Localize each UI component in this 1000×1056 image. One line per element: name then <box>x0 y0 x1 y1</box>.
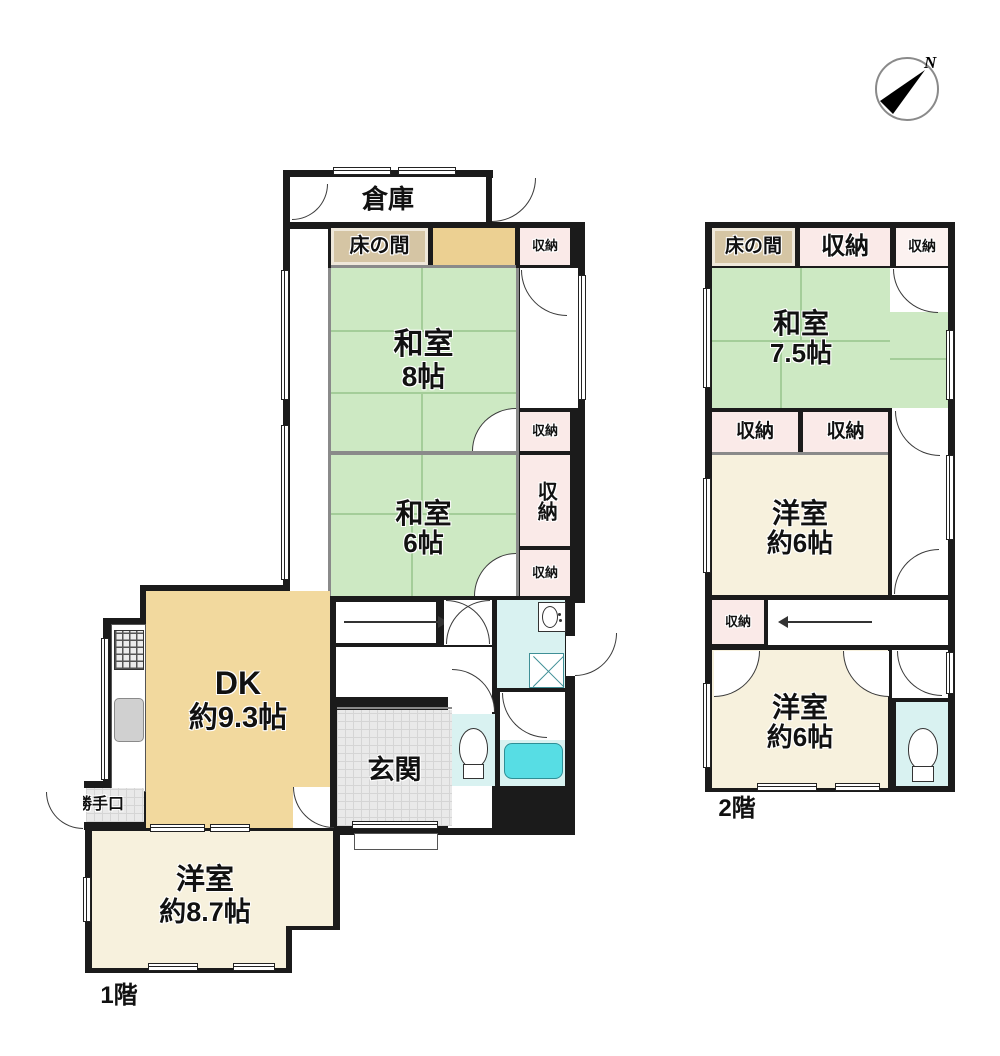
window <box>210 824 250 832</box>
room-closet-1f-r2 <box>520 455 570 546</box>
sink-tap <box>558 613 561 616</box>
sink-tap <box>559 619 562 622</box>
room-closet-1f-r3 <box>520 550 570 596</box>
door-gap <box>566 636 575 676</box>
window <box>946 652 954 694</box>
room-closet-2f-top2 <box>896 228 948 266</box>
katteguchi-landing <box>86 788 144 822</box>
sink-basin <box>542 606 558 628</box>
stove-icon <box>114 630 144 670</box>
floor-plan-canvas: N 倉庫 床の間 収納 和室 8帖 収納 収納 収納 和室 6帖 <box>0 0 1000 1056</box>
partition-line <box>516 268 519 596</box>
door-arc <box>575 633 617 676</box>
toilet-base <box>463 764 484 779</box>
room-closet-2f-m2 <box>803 412 888 452</box>
compass-icon: N <box>872 50 944 124</box>
window <box>835 783 880 791</box>
door-arc <box>46 792 83 829</box>
corridor-1f-left <box>290 229 328 596</box>
tatami-line <box>780 340 782 408</box>
toilet-base <box>912 766 934 782</box>
partition-line <box>337 707 452 709</box>
room-tokonoma-2f <box>712 228 795 266</box>
toilet-icon <box>459 728 488 768</box>
stairs-2f-arrowhead <box>772 616 788 628</box>
window <box>333 167 391 175</box>
window <box>281 270 289 400</box>
window <box>703 288 711 388</box>
room-oshiire-1f <box>433 228 515 265</box>
window <box>83 877 91 922</box>
window <box>150 824 205 832</box>
stairs-1f-arrow <box>344 621 440 623</box>
window <box>703 683 711 768</box>
partition-line <box>331 265 516 268</box>
floor1-label: 1階 <box>84 980 154 1012</box>
window <box>233 963 275 971</box>
room-closet-1f-top <box>520 228 570 265</box>
tatami-line <box>800 268 802 342</box>
room-youshitsu6a <box>712 455 888 595</box>
tatami-line <box>421 268 423 332</box>
room-genkan <box>337 710 452 826</box>
tatami-line <box>421 392 423 451</box>
room-closet-2f-m1 <box>712 412 798 452</box>
window <box>703 478 711 573</box>
room-closet-2f-stair <box>712 600 764 644</box>
entrance-door <box>352 821 438 829</box>
room-closet-1f-r1 <box>520 412 570 451</box>
room-youshitsu87-b <box>92 925 286 968</box>
entrance-step <box>354 833 438 850</box>
window <box>148 963 198 971</box>
window <box>398 167 456 175</box>
window <box>757 783 817 791</box>
tatami-line <box>331 392 516 394</box>
partition-line <box>331 451 516 455</box>
washing-machine-pan-icon <box>529 653 564 688</box>
kitchen-sink-icon <box>114 698 144 742</box>
window <box>101 638 109 780</box>
toilet-icon <box>908 728 938 770</box>
window <box>946 330 954 400</box>
bathtub-icon <box>504 743 563 779</box>
room-closet-2f-top1 <box>800 228 890 266</box>
room-youshitsu87-a <box>92 831 333 926</box>
tatami-line <box>331 513 516 515</box>
room-tokonoma-1f <box>331 228 428 265</box>
compass-north-label: N <box>923 53 937 72</box>
tatami-line <box>421 455 423 515</box>
window <box>281 425 289 580</box>
window <box>946 455 954 540</box>
stairs-2f-arrow <box>782 621 872 623</box>
sink-icon <box>538 602 566 632</box>
floor2-label: 2階 <box>702 793 772 825</box>
window <box>578 275 586 400</box>
tatami-line <box>331 330 516 332</box>
door-arc <box>492 178 536 222</box>
partition-line <box>328 268 331 596</box>
tatami-line <box>411 513 413 596</box>
tatami-line <box>890 358 948 360</box>
